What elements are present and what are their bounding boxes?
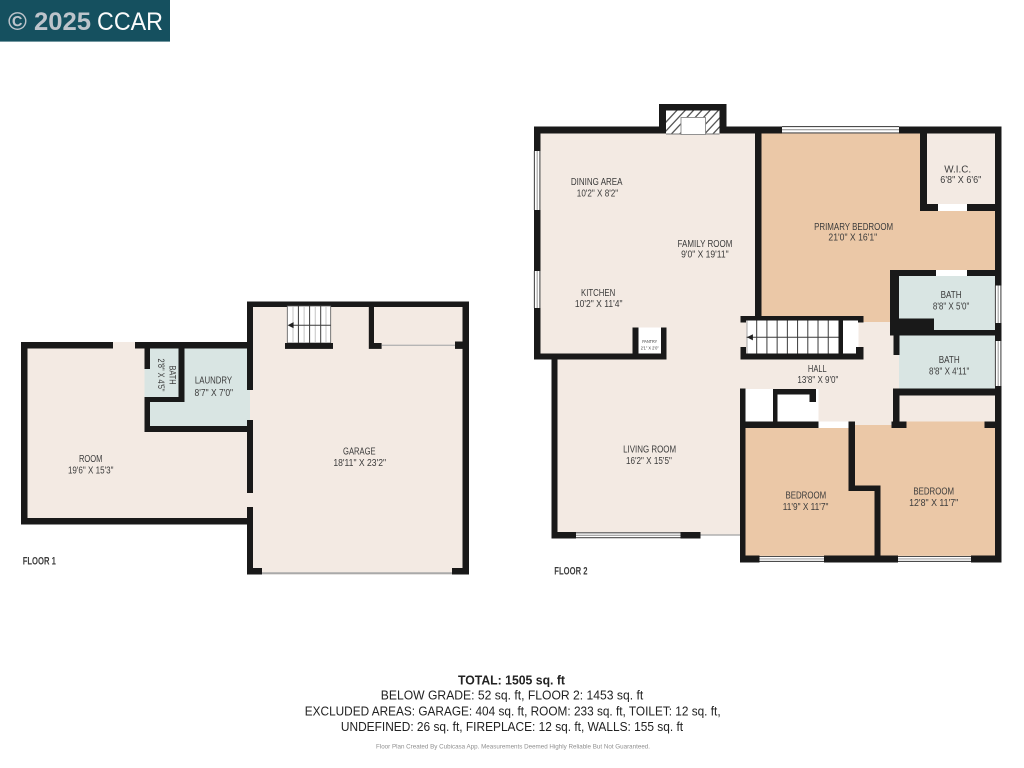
svg-text:2'1" X 2'0": 2'1" X 2'0" [641, 345, 659, 350]
svg-text:KITCHEN: KITCHEN [581, 288, 615, 299]
svg-text:BATH: BATH [941, 290, 962, 301]
svg-text:13'8" X 9'0": 13'8" X 9'0" [797, 375, 838, 386]
svg-text:DINING AREA: DINING AREA [571, 177, 623, 188]
svg-text:PRIMARY BEDROOM: PRIMARY BEDROOM [814, 222, 893, 233]
svg-text:21'0" X 16'1": 21'0" X 16'1" [828, 233, 877, 244]
svg-text:9'0" X 19'11": 9'0" X 19'11" [681, 250, 729, 261]
svg-text:BEDROOM: BEDROOM [785, 491, 826, 502]
svg-text:CCAR: CCAR [97, 8, 163, 36]
svg-text:10'2" X 8'2": 10'2" X 8'2" [577, 189, 619, 200]
svg-text:EXCLUDED AREAS: GARAGE: 404 sq: EXCLUDED AREAS: GARAGE: 404 sq. ft, ROOM… [305, 705, 721, 719]
svg-text:UNDEFINED: 26 sq. ft, FIREPLAC: UNDEFINED: 26 sq. ft, FIREPLACE: 12 sq. … [341, 720, 684, 734]
svg-text:18'11" X 23'2": 18'11" X 23'2" [333, 458, 386, 469]
svg-text:Floor Plan Created By Cubicasa: Floor Plan Created By Cubicasa App. Meas… [376, 744, 650, 751]
svg-text:GARAGE: GARAGE [343, 447, 376, 458]
svg-text:8'8" X 4'11": 8'8" X 4'11" [929, 367, 970, 378]
svg-text:PANTRY: PANTRY [642, 339, 657, 344]
svg-text:12'8" X 11'7": 12'8" X 11'7" [909, 498, 959, 509]
svg-text:16'2" X 15'5": 16'2" X 15'5" [626, 456, 672, 467]
svg-text:ROOM: ROOM [79, 454, 103, 465]
svg-text:19'6" X 15'3": 19'6" X 15'3" [68, 465, 114, 476]
svg-text:6'8" X 6'6": 6'8" X 6'6" [940, 175, 981, 186]
svg-text:BELOW GRADE: 52 sq. ft, FLOOR: BELOW GRADE: 52 sq. ft, FLOOR 2: 1453 sq… [381, 689, 644, 703]
svg-text:© 2025: © 2025 [8, 8, 91, 36]
svg-text:FLOOR 1: FLOOR 1 [23, 555, 56, 567]
svg-text:2'8" X 4'5": 2'8" X 4'5" [156, 359, 166, 392]
svg-text:HALL: HALL [808, 364, 827, 375]
svg-text:8'7" X 7'0": 8'7" X 7'0" [195, 388, 234, 399]
svg-text:BATH: BATH [939, 355, 960, 366]
svg-text:TOTAL: 1505 sq. ft: TOTAL: 1505 sq. ft [458, 674, 566, 688]
svg-text:FLOOR 2: FLOOR 2 [554, 566, 587, 578]
svg-text:W.I.C.: W.I.C. [944, 164, 971, 175]
svg-text:BATH: BATH [168, 366, 178, 385]
svg-text:LIVING ROOM: LIVING ROOM [623, 444, 676, 455]
svg-text:10'2" X 11'4": 10'2" X 11'4" [575, 299, 623, 310]
svg-text:11'9" X 11'7": 11'9" X 11'7" [783, 502, 829, 513]
svg-text:FAMILY ROOM: FAMILY ROOM [678, 239, 733, 250]
svg-text:8'8" X 5'0": 8'8" X 5'0" [933, 302, 970, 313]
svg-text:BEDROOM: BEDROOM [913, 486, 954, 497]
svg-text:LAUNDRY: LAUNDRY [195, 375, 232, 386]
